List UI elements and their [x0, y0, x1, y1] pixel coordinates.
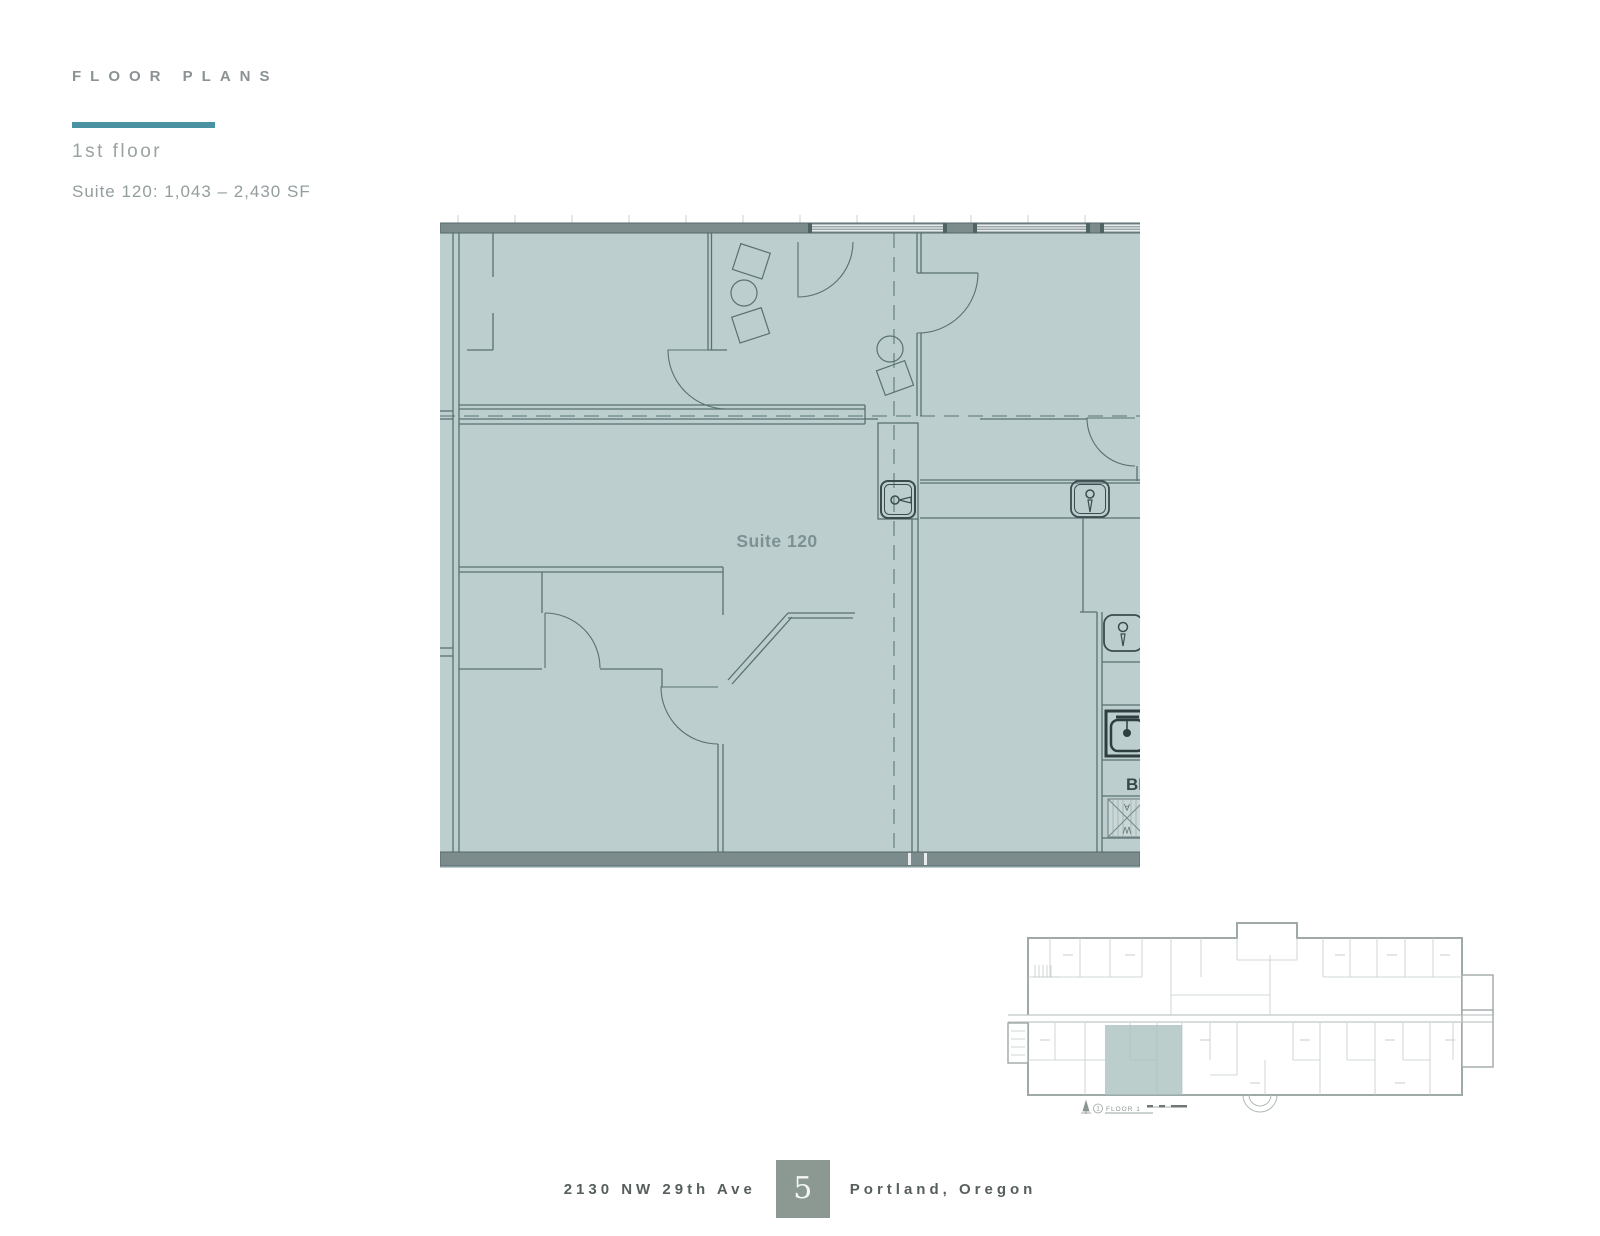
break-room-label: BI — [1126, 775, 1140, 794]
building-overview-plan: 1 FLOOR 1 — [1005, 915, 1495, 1115]
window-band-3 — [1100, 223, 1140, 233]
floor-label: 1st floor — [72, 141, 162, 163]
corridor-lines — [1008, 1015, 1493, 1022]
building-outline — [1008, 923, 1493, 1095]
window-band-2 — [973, 223, 1090, 233]
plan-caption: 1 FLOOR 1 — [1081, 1101, 1187, 1115]
window-band-1 — [808, 223, 947, 233]
suite-120-floor-plan: A W — [440, 215, 1140, 868]
brochure-page: FLOOR PLANS 1st floor Suite 120: 1,043 –… — [0, 0, 1600, 1236]
north-arrow-icon — [1081, 1101, 1091, 1114]
page-number-box: 5 — [776, 1160, 830, 1218]
scale-bar — [1147, 1105, 1187, 1108]
suite-label: Suite 120 — [736, 531, 817, 551]
washer-letter-a: A — [1124, 802, 1130, 812]
footer: 2130 NW 29th Ave 5 Portland, Oregon — [0, 1160, 1600, 1218]
washer-letter-w: W — [1122, 825, 1131, 835]
rotunda — [1243, 1095, 1277, 1112]
suite-size-label: Suite 120: 1,043 – 2,430 SF — [72, 182, 311, 202]
accent-rule — [72, 122, 215, 128]
suite-120-highlight — [1105, 1025, 1182, 1095]
footer-address: 2130 NW 29th Ave — [564, 1181, 756, 1198]
page-number: 5 — [793, 1174, 812, 1204]
page-title: FLOOR PLANS — [72, 68, 279, 85]
footer-city: Portland, Oregon — [850, 1181, 1037, 1198]
floor-caption: FLOOR 1 — [1106, 1106, 1141, 1113]
floor-number: 1 — [1096, 1107, 1100, 1113]
grid-ticks — [458, 215, 1085, 223]
washer-box: A W — [1108, 799, 1140, 837]
